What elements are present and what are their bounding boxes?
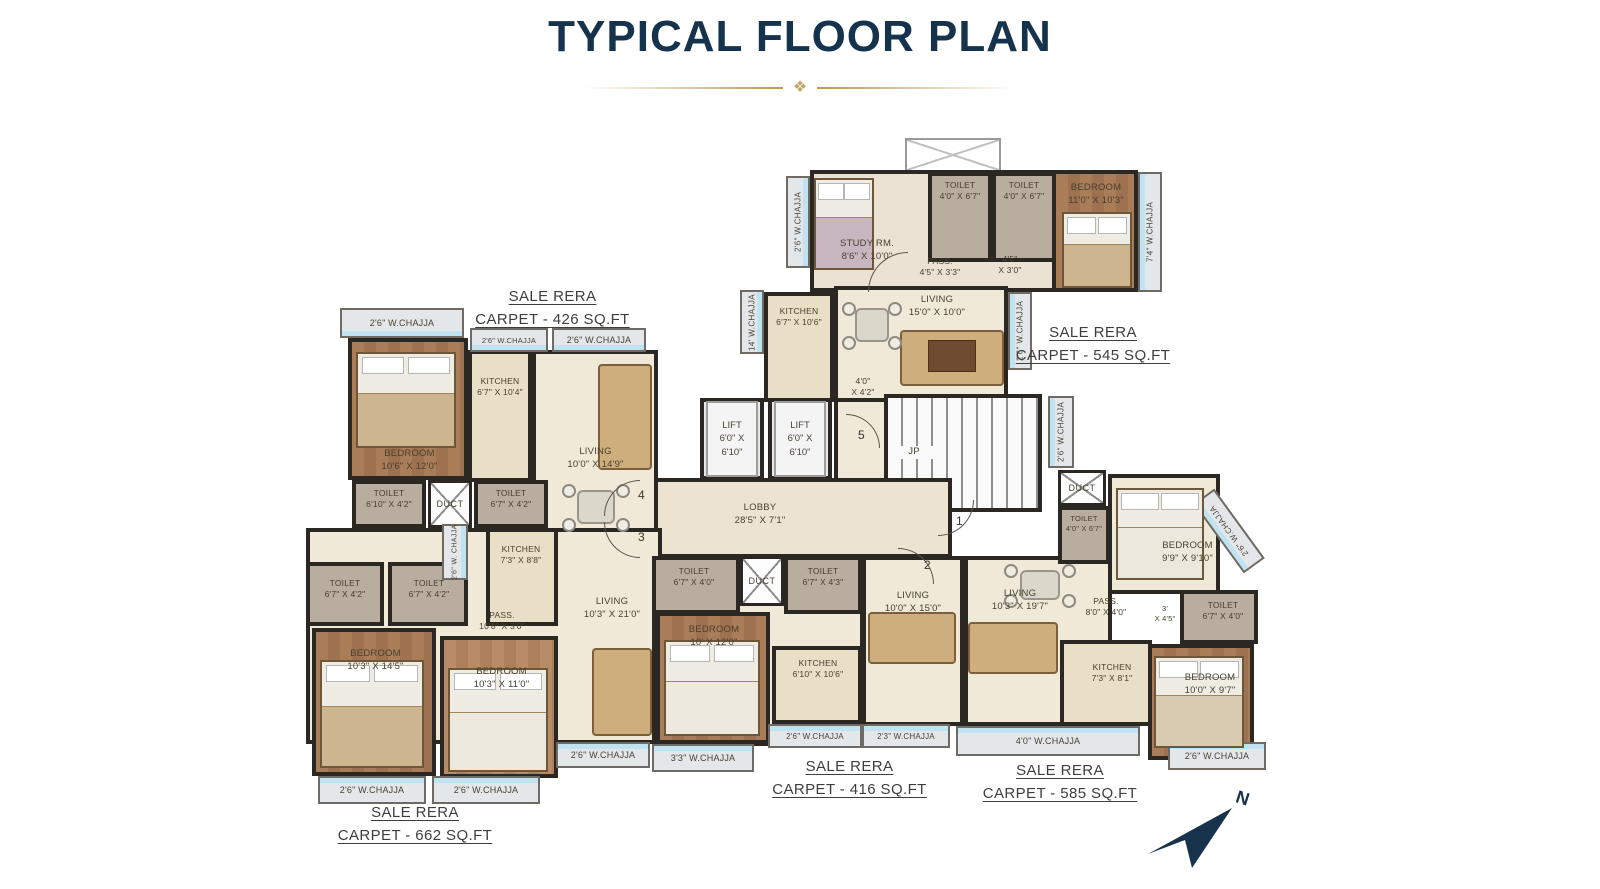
toilet-416a-label: TOILET6'7" X 4'0" <box>656 566 732 589</box>
staircase-label: JP <box>894 446 934 459</box>
chajja-545-left-label: 2'6" W.CHAJJA <box>786 176 810 268</box>
lift-2: LIFT6'0" X 6'10" <box>768 398 832 480</box>
sofa-icon <box>868 612 956 664</box>
chajja-662-b2-label: 2'6" W.CHAJJA <box>432 776 540 804</box>
duct-core: DUCT <box>1058 470 1106 506</box>
toilet-662b-label: TOILET6'7" X 4'2" <box>394 578 464 601</box>
unit-number-5: 5 <box>858 428 865 442</box>
kitchen-545-label: KITCHEN6'7" X 10'6" <box>766 306 832 329</box>
bedroom-426-label: BEDROOM10'6" X 12'0" <box>362 448 457 474</box>
toilet-585b-label: TOILET6'7" X 4'0" <box>1190 600 1256 623</box>
chajja-416-23-label: 2'3" W.CHAJJA <box>862 724 950 748</box>
toilet-662a-label: TOILET6'7" X 4'2" <box>310 578 380 601</box>
niche-top-label: 4'5"X 3'0" <box>982 254 1038 277</box>
pass-585s-label: 3'X 4'5" <box>1146 604 1184 624</box>
unit-number-2: 2 <box>924 558 931 572</box>
unit-number-4: 4 <box>638 488 645 502</box>
chajja-585-40-label: 4'0" W.CHAJJA <box>956 726 1140 756</box>
divider-line-left <box>583 87 783 89</box>
chajja-416-33-label: 3'3" W.CHAJJA <box>652 744 754 772</box>
bed-icon <box>356 352 456 448</box>
living-585-label: LIVING10'3" X 19'7" <box>974 588 1066 614</box>
duct-416: DUCT <box>740 556 784 606</box>
living-545-label: LIVING15'0" X 10'0" <box>882 294 992 320</box>
chajja-545-low-label: 2'6" W.CHAJJA <box>1048 396 1074 468</box>
chajja-545-right-label: 7'4" W.CHAJJA <box>1138 172 1162 292</box>
chajja-585-bottom-label: 2'6" W.CHAJJA <box>1168 742 1266 770</box>
study-label: STUDY RM.8'6" X 10'0" <box>822 238 912 264</box>
toilet-top1-label: TOILET4'0" X 6'7" <box>928 180 992 203</box>
living-426-label: LIVING10'0" X 14'9" <box>548 446 643 472</box>
toilet-416b-label: TOILET6'7" X 4'3" <box>788 566 858 589</box>
bedroom-662a-label: BEDROOM10'3" X 14'5" <box>328 648 423 674</box>
living-416-label: LIVING10'0" X 15'0" <box>868 590 958 616</box>
sofa-icon <box>592 648 652 736</box>
kitchen-416-label: KITCHEN6'10" X 10'6" <box>786 658 850 681</box>
unit-number-1: 1 <box>956 514 963 528</box>
duct-426: DUCT <box>428 480 472 528</box>
chajja-662-vert-label: 2'6" W. CHAJJA <box>442 524 468 580</box>
chajja-426-kitchen-label: 2'6" W.CHAJJA <box>470 328 548 352</box>
unit-number-3: 3 <box>638 530 645 544</box>
bed-icon <box>320 660 424 768</box>
pass-585-label: PASS.8'0" X 4'0" <box>1066 596 1146 619</box>
divider-line-right <box>817 87 1017 89</box>
sofa-icon <box>968 622 1058 674</box>
chajja-416-26-label: 2'6" W.CHAJJA <box>768 724 862 748</box>
toilet-top2-label: TOILET4'0" X 6'7" <box>992 180 1056 203</box>
kitchen-662-label: KITCHEN7'3" X 8'8" <box>488 544 554 567</box>
coffee-table-icon <box>928 340 976 372</box>
chajja-662-b1-label: 2'6" W.CHAJJA <box>318 776 426 804</box>
toilet-426a-label: TOILET6'10" X 4'2" <box>354 488 424 511</box>
bedroom-416-label: BEDROOM10' X 12'0" <box>672 624 756 650</box>
bedroom-top-label: BEDROOM11'0" X 10'3" <box>1056 182 1136 208</box>
lift-1: LIFT6'0" X 6'10" <box>700 398 764 480</box>
open-to-sky-box <box>905 138 1001 172</box>
chajja-426-top-label: 2'6" W.CHAJJA <box>340 308 464 338</box>
chajja-545-kitchen-label: 14' W.CHAJJA <box>740 290 764 354</box>
page-title: TYPICAL FLOOR PLAN <box>0 12 1600 62</box>
bed-icon <box>1062 212 1132 288</box>
toilet-426b-label: TOILET6'7" X 4'2" <box>476 488 546 511</box>
living-662-label: LIVING10'3" X 21'0" <box>566 596 658 622</box>
chajja-662-mid-label: 2'6" W.CHAJJA <box>556 742 650 768</box>
bedroom-662b-label: BEDROOM10'3" X 11'0" <box>454 666 549 692</box>
chajja-426-living-label: 2'6" W.CHAJJA <box>552 328 646 352</box>
rera-416-label: SALE RERACARPET - 416 SQ.FT <box>772 756 927 801</box>
bedroom-585a-label: BEDROOM9'9" X 9'10" <box>1140 540 1235 566</box>
rera-662-label: SALE RERACARPET - 662 SQ.FT <box>330 802 500 847</box>
toilet-585a-label: TOILET4'0" X 6'7" <box>1056 514 1112 534</box>
rera-426-label: SALE RERACARPET - 426 SQ.FT <box>470 286 635 331</box>
kitchen-426-block <box>468 350 532 482</box>
bedroom-585b-label: BEDROOM10'0" X 9'7" <box>1168 672 1252 698</box>
pass-top-label: PASS.4'5" X 3'3" <box>900 256 980 279</box>
rera-585-label: SALE RERACARPET - 585 SQ.FT <box>975 760 1145 805</box>
kitchen-585-label: KITCHEN7'3" X 8'1" <box>1080 662 1144 685</box>
kitchen-426-label: KITCHEN6'7" X 10'4" <box>468 376 532 399</box>
bed-icon <box>664 640 760 736</box>
pass-662-label: PASS.10'8" X 3'0" <box>452 610 552 633</box>
bed-icon <box>1154 656 1244 748</box>
diamond-ornament-icon: ❖ <box>793 80 807 96</box>
lobby-label: LOBBY28'5" X 7'1" <box>700 502 820 528</box>
bed-icon <box>1116 488 1204 580</box>
rera-545-label: SALE RERACARPET - 545 SQ.FT <box>1008 322 1178 367</box>
title-divider: ❖ <box>0 80 1600 96</box>
pass-core-label: 4'0"X 4'2" <box>836 376 890 399</box>
